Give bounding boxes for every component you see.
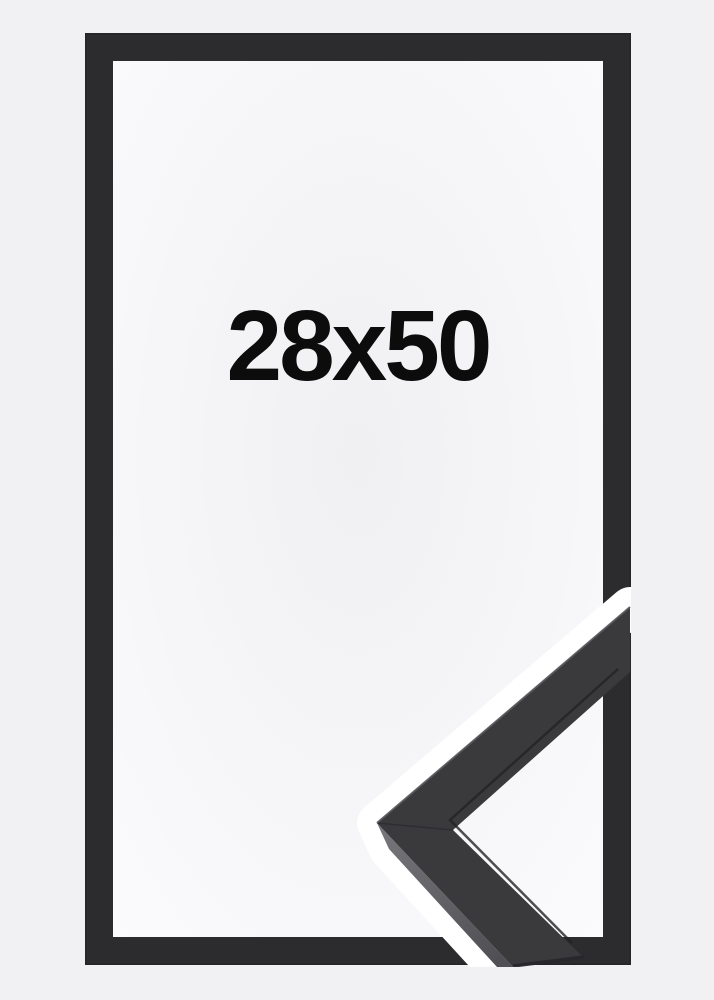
frame-scene <box>0 0 714 1000</box>
size-label: 28x50 <box>85 294 631 398</box>
frame-interior <box>113 61 603 937</box>
product-image: 28x50 <box>0 0 714 1000</box>
